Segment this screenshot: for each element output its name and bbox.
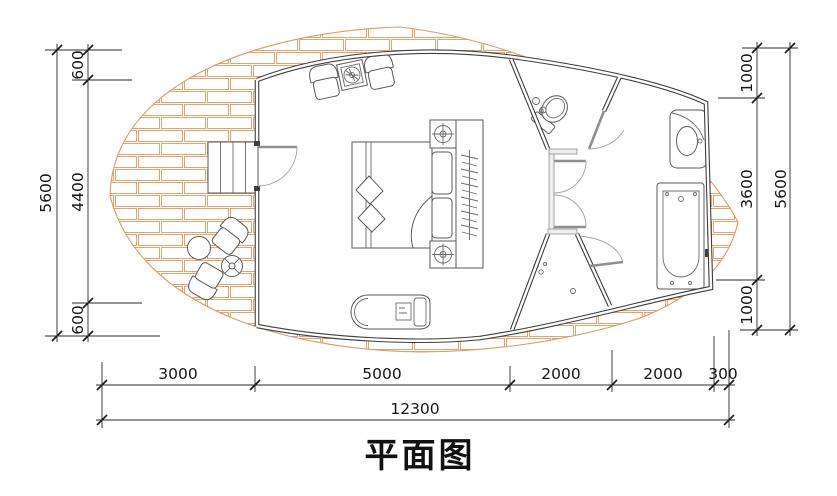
double-bed [352,142,432,248]
shower-sill [548,229,577,234]
dim-left-seg-600-bottom: 600 [69,305,87,335]
dim-right-seg-3600: 3600 [738,169,756,208]
dim-left-seg-600-top: 600 [69,50,87,80]
chaise-lounge [351,295,430,329]
wc-door-sill [549,149,577,154]
dim-right-total: 5600 [772,169,790,208]
entry-steps [208,142,258,193]
corridor-partition [549,154,554,229]
dimension-labels-left: 5600 600 4400 600 [37,50,87,335]
dimension-labels-bottom: 3000 5000 2000 2000 300 12300 [158,365,738,418]
dim-bottom-seg-3000: 3000 [158,365,197,383]
bathtub [657,183,704,289]
dim-right-seg-1000-top: 1000 [738,53,756,92]
dim-right-seg-1000-bottom: 1000 [738,285,756,324]
dim-bottom-seg-300: 300 [708,365,738,383]
wardrobe-with-hangers [456,120,483,268]
floor-plan-canvas: 5600 600 4400 600 1000 3600 1000 5600 30… [0,0,837,496]
dim-left-seg-4400: 4400 [69,172,87,211]
outdoor-round-table [188,237,211,260]
nightstand-lamp-top [430,120,456,148]
dim-left-total: 5600 [37,173,55,212]
washbasin-vanity [670,110,707,168]
nightstand-lamp-bottom [430,241,456,268]
dim-bottom-seg-2000-b: 2000 [643,365,682,383]
dimension-labels-right: 1000 3600 1000 5600 [738,53,790,324]
side-table [337,60,368,91]
dim-bottom-total: 12300 [390,400,439,418]
dim-bottom-seg-2000-a: 2000 [541,365,580,383]
outdoor-stool [222,256,243,277]
dim-bottom-seg-5000: 5000 [362,365,401,383]
drawing-title: 平面图 [365,436,476,476]
